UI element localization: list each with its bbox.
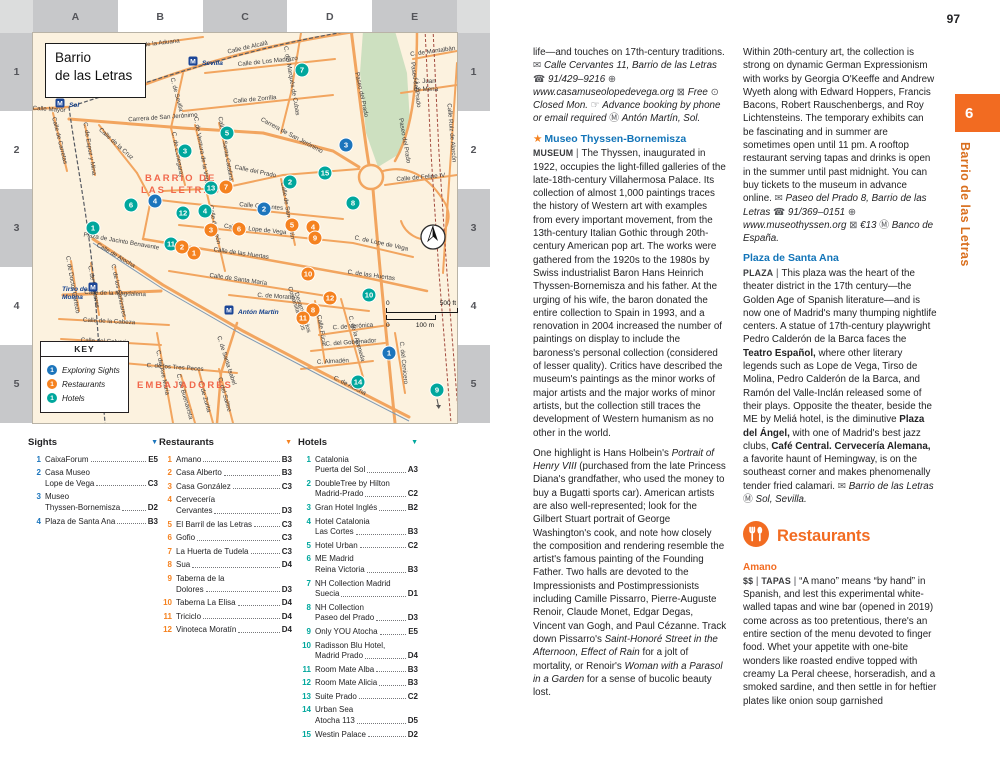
list-item-number: 1 [159,455,172,465]
dot-leader [368,736,406,737]
restaurants-list: Restaurants▼1AmanoB32Casa AlbertoB33Casa… [159,438,292,639]
svg-text:2: 2 [262,205,266,214]
street-label: Calle de Carretas [50,116,68,164]
list-item-name: Madrid Prado [315,651,363,661]
svg-text:10: 10 [304,270,312,279]
street-label: Calle de la Cruz [97,127,134,162]
list-item: 12Room Mate AliciaB3 [298,678,418,688]
fork-and-spoon-icon [743,521,769,551]
key-row: 1Hotels [47,393,122,403]
dot-leader [365,658,406,659]
list-item-number: 5 [159,520,172,530]
svg-text:7: 7 [224,183,228,192]
svg-text:2: 2 [180,243,184,252]
metro-station-label: Antón Martín [237,309,279,316]
key-item-label: Restaurants [62,380,105,389]
scale-zero-m: 0 [386,322,390,329]
grid-reference: B3 [408,527,418,537]
chapter-title-vertical: Barrio de las Letras [958,142,972,312]
list-item-number: 2 [298,479,311,489]
dot-leader [206,591,280,592]
list-item-number: 2 [159,468,172,478]
list-title: Sights [28,438,57,448]
svg-text:14: 14 [354,378,363,387]
map-marker-sights-3: 3 [339,138,353,152]
list-item: 4CervantesD3 [159,506,292,516]
key-marker-dot: 1 [47,365,57,375]
grid-col-A: A [33,0,118,33]
grid-col-D: D [287,0,372,33]
list-item-number: 9 [298,627,311,637]
map-key-items: 1Exploring Sights1Restaurants1Hotels [41,357,128,412]
list-item-name: Museo [45,492,69,502]
grid-reference: D4 [282,625,292,635]
svg-text:9: 9 [435,386,439,395]
list-item-number: 11 [159,612,172,622]
map-marker-hotels-1: 1 [86,221,100,235]
dot-leader [238,605,280,606]
hotels-list: Hotels▼1Catalonia1Puerta del SolA32Doubl… [298,438,418,743]
scale-ft-label: 500 ft [440,300,456,307]
grid-reference: D2 [408,730,418,740]
list-item: 7La Huerta de TudelaC3 [159,547,292,557]
chapter-tab: 6 [955,94,1000,132]
list-item-name: Thyssen-Bornemisza [45,503,120,513]
sights-list: Sights▼1CaixaForumE52Casa Museo2Lope de … [28,438,158,530]
street-label: Calle Ruiz de Alarcón [445,103,457,163]
list-item-number: 9 [159,585,172,595]
list-item: 4Las CortesB3 [298,527,418,537]
grid-corner [457,0,490,33]
map-marker-restaurants-12: 12 [323,291,337,305]
grid-reference: B2 [408,503,418,513]
list-item: 3Gran Hotel InglésB2 [298,503,418,513]
paragraph: $$ | TAPAS | “A mano” means “by hand” in… [743,575,937,708]
list-item-number: 7 [159,547,172,557]
dot-leader [224,475,280,476]
list-item: 4Plaza de Santa AnaB3 [28,517,158,527]
dot-leader [91,461,147,462]
list-item: 6ME Madrid [298,554,418,564]
paragraph: life—and touches on 17th-century traditi… [533,46,727,126]
dot-leader [341,596,405,597]
star-icon: ★ [533,133,542,145]
list-item-name: Hotel Catalonia [315,517,370,527]
list-title: Hotels [298,438,327,448]
list-item: 2Madrid-PradoC2 [298,489,418,499]
scale-bar-ft [386,308,458,313]
list-item: 4Hotel Catalonia [298,517,418,527]
grid-reference: D2 [148,503,158,513]
list-item-number: 4 [159,506,172,516]
list-item: 10Madrid PradoD4 [298,651,418,661]
dot-leader [192,567,280,568]
list-item: 3Casa GonzálezC3 [159,482,292,492]
list-item-name: Dolores [176,585,204,595]
key-row: 1Exploring Sights [47,365,122,375]
map-title-line2: de las Letras [55,67,145,85]
area-label: EMBAJADORES [137,380,233,391]
list-item-number: 9 [159,574,172,584]
dot-leader [203,461,279,462]
map-key: KEY 1Exploring Sights1Restaurants1Hotels [40,341,129,413]
list-item: 13Suite PradoC2 [298,692,418,702]
list-item: 2Casa Museo [28,468,158,478]
svg-text:9: 9 [313,234,317,243]
grid-reference: C2 [408,692,418,702]
map-marker-hotels-15: 15 [318,166,332,180]
text-column-2: Within 20th-century art, the collection … [743,46,937,715]
grid-reference: C3 [148,479,158,489]
grid-col-E: E [372,0,457,33]
list-item-name: Reina Victoria [315,565,365,575]
list-item-number: 15 [298,730,311,740]
list-item-number: 4 [159,495,172,505]
list-item: 11TricicloD4 [159,612,292,622]
map-marker-restaurants-2: 2 [175,240,189,254]
list-item-number: 4 [28,517,41,527]
svg-text:2: 2 [288,178,292,187]
list-item-number: 13 [298,692,311,702]
map-title-line1: Barrio [55,49,145,67]
list-title: Restaurants [159,438,214,448]
grid-col-B: B [118,0,203,33]
list-item-number: 12 [298,678,311,688]
svg-text:M: M [57,100,63,107]
map-marker-sights-4: 4 [148,194,162,208]
dot-leader [379,685,406,686]
list-item-name: El Barril de las Letras [176,520,252,530]
list-item: 12Vinoteca MoratínD4 [159,625,292,635]
scale-bar-m [386,315,436,320]
svg-text:6: 6 [237,225,241,234]
list-item-name: Cervantes [176,506,212,516]
text-column-1: life—and touches on 17th-century traditi… [533,46,727,706]
grid-reference: D3 [408,613,418,623]
restaurant-name-heading: Amano [743,561,937,574]
dot-leader [254,526,280,527]
map-marker-hotels-8: 8 [346,196,360,210]
area-label: BARRIO DE [145,173,216,184]
list-item-number: 1 [28,455,41,465]
map-marker-restaurants-3: 3 [204,223,218,237]
list-item-name: Atocha 113 [315,716,355,726]
map-marker-hotels-5: 5 [220,126,234,140]
list-item-number: 14 [298,705,311,715]
svg-text:3: 3 [183,147,187,156]
scale-m-label: 100 m [416,322,434,329]
list-header: Restaurants▼ [159,438,292,448]
list-item-name: Room Mate Alba [315,665,374,675]
list-item: 6Reina VictoriaB3 [298,565,418,575]
list-item: 10Taberna La ElisaD4 [159,598,292,608]
grid-col-C: C [203,0,288,33]
grid-row-left-4: 4 [0,267,33,345]
list-item-name: Suite Prado [315,692,357,702]
grid-reference: D4 [282,598,292,608]
list-item: 9DoloresD3 [159,585,292,595]
chapter-number: 6 [965,105,973,122]
street-label: Calle de la Cabeza [83,317,136,327]
grid-row-left-3: 3 [0,189,33,267]
map-marker-restaurants-7: 7 [219,180,233,194]
list-item-name: Radisson Blu Hotel, [315,641,385,651]
grid-reference: D3 [282,506,292,516]
dot-leader [357,723,406,724]
svg-text:11: 11 [299,314,308,323]
map-marker-hotels-4: 4 [198,204,212,218]
section-title: Restaurants [777,530,870,543]
map-marker-hotels-7: 7 [295,63,309,77]
list-item: 8NH Collection [298,603,418,613]
key-item-label: Exploring Sights [62,366,120,375]
page-number: 97 [930,12,960,26]
dot-leader [367,472,406,473]
map-marker-hotels-13: 13 [204,181,218,195]
list-item: 7NH Collection Madrid [298,579,418,589]
svg-text:M: M [90,284,96,291]
map-marker-restaurants-9: 9 [308,231,322,245]
poi-heading: Plaza de Santa Ana [743,252,937,265]
list-item-number: 11 [298,665,311,675]
map-key-title: KEY [41,342,128,357]
list-item-number: 3 [159,482,172,492]
list-item-name: Urban Sea [315,705,353,715]
grid-reference: B3 [408,665,418,675]
list-item-number: 6 [298,554,311,564]
dot-leader [376,620,406,621]
list-item: 4Cervecería [159,495,292,505]
grid-row-right-5: 5 [457,345,490,423]
map-marker-sights-1: 1 [382,346,396,360]
list-item-number: 8 [298,613,311,623]
dot-leader [376,671,406,672]
street-label: C. de los Tres Peces [146,362,203,373]
dot-leader [356,534,406,535]
list-item: 8Paseo del PradoD3 [298,613,418,623]
list-item-number: 6 [159,533,172,543]
list-item: 5Hotel UrbanC2 [298,541,418,551]
list-item-name: DoubleTree by Hilton [315,479,390,489]
list-item-name: Amano [176,455,201,465]
list-item: 3Thyssen-BornemiszaD2 [28,503,158,513]
roundabout [359,165,383,189]
grid-reference: C3 [282,547,292,557]
map-marker-hotels-10: 10 [362,288,376,302]
list-item-name: Westin Palace [315,730,366,740]
list-item: 2Lope de VegaC3 [28,479,158,489]
svg-text:7: 7 [300,66,304,75]
list-item-name: Gofio [176,533,195,543]
list-item-number: 7 [298,589,311,599]
list-item: 2Casa AlbertoB3 [159,468,292,478]
list-item-name: Casa Alberto [176,468,222,478]
list-item-number: 10 [298,641,311,651]
list-item-name: Taberna La Elisa [176,598,236,608]
svg-text:15: 15 [321,169,330,178]
map-marker-restaurants-10: 10 [301,267,315,281]
svg-text:12: 12 [179,209,187,218]
list-item-name: La Huerta de Tudela [176,547,249,557]
north-arrow-icon [419,223,447,251]
map-title-box: Barrio de las Letras [45,43,146,98]
list-item: 1Puerta del SolA3 [298,465,418,475]
list-item-number: 4 [298,527,311,537]
list-item-number: 3 [298,503,311,513]
map-marker-hotels-12: 12 [176,206,190,220]
metro-station-label: Sol [69,102,79,109]
street-label: Calle de Felipe IV [396,172,446,183]
dot-leader [251,553,280,554]
list-item: 8SuaD4 [159,560,292,570]
list-item-name: Cervecería [176,495,215,505]
grid-row-left-5: 5 [0,345,33,423]
grid-reference: B3 [282,455,292,465]
list-item-number: 5 [298,541,311,551]
list-item-number: 12 [159,625,172,635]
list-item-name: NH Collection [315,603,364,613]
list-item-number: 10 [159,598,172,608]
list-item-number: 6 [298,565,311,575]
street-label: C. de Sevilla [169,77,185,113]
street-label: C. de Espoz y Mina [81,122,97,177]
paragraph: Within 20th-century art, the collection … [743,46,937,245]
list-item-name: Suecia [315,589,339,599]
list-item-number: 1 [298,455,311,465]
svg-text:M: M [226,307,232,314]
svg-text:11: 11 [167,240,176,249]
grid-row-right-2: 2 [457,111,490,189]
sort-triangle-icon: ▼ [411,438,418,448]
key-marker-dot: 1 [47,393,57,403]
list-item: 1CaixaForumE5 [28,455,158,465]
list-item: 14Urban Sea [298,705,418,715]
grid-reference: E5 [148,455,158,465]
list-item: 9Taberna de la [159,574,292,584]
svg-text:13: 13 [207,184,215,193]
street-label: Carrera de San Jerónimo [128,112,198,124]
list-item-name: ME Madrid [315,554,354,564]
list-header: Hotels▼ [298,438,418,448]
grid-reference: D4 [408,651,418,661]
dot-leader [238,632,279,633]
dot-leader [117,523,145,524]
list-item-name: Casa Museo [45,468,90,478]
dot-leader [367,572,406,573]
sort-triangle-icon: ▼ [151,438,158,448]
list-item-name: Taberna de la [176,574,224,584]
list-item-number: 2 [298,489,311,499]
svg-text:12: 12 [326,294,334,303]
dot-leader [365,496,405,497]
grid-row-right-3: 3 [457,189,490,267]
street-label: Calle del Prado [234,164,277,180]
list-item: 1Catalonia [298,455,418,465]
list-item-number: 1 [298,465,311,475]
grid-reference: D1 [408,589,418,599]
dot-leader [359,698,406,699]
list-item-number: 14 [298,716,311,726]
list-item-number: 4 [298,517,311,527]
svg-text:3: 3 [344,141,348,150]
map-marker-restaurants-6: 6 [232,222,246,236]
grid-reference: C3 [282,520,292,530]
scale-zero-ft: 0 [386,300,390,307]
metro-station-label: Molina [62,294,83,301]
street-label: C. de las Huertas [347,269,395,283]
list-item-name: Las Cortes [315,527,354,537]
grid-reference: B3 [282,468,292,478]
list-item-number: 3 [28,503,41,513]
list-item-name: Vinoteca Moratín [176,625,236,635]
street-label: Calle de Santa María [209,272,268,287]
list-header: Sights▼ [28,438,158,448]
svg-text:8: 8 [311,306,315,315]
list-item: 15Westin PalaceD2 [298,730,418,740]
key-marker-dot: 1 [47,379,57,389]
grid-reference: B3 [148,517,158,527]
list-item-number: 2 [28,479,41,489]
list-item-name: Room Mate Alicia [315,678,377,688]
paragraph: PLAZA | This plaza was the heart of the … [743,267,937,506]
list-item: 6GofioC3 [159,533,292,543]
dot-leader [203,618,280,619]
list-item-name: Only YOU Atocha [315,627,378,637]
metro-station-label: Tirso de [62,286,88,293]
svg-text:M: M [190,58,196,65]
list-item: 11Room Mate AlbaB3 [298,665,418,675]
grid-row-right-4: 4 [457,267,490,345]
list-item-name: Hotel Urban [315,541,358,551]
grid-reference: C3 [282,533,292,543]
grid-reference: D3 [282,585,292,595]
grid-reference: D4 [282,612,292,622]
list-item: 3Museo [28,492,158,502]
dot-leader [360,547,406,548]
list-item-name: Gran Hotel Inglés [315,503,377,513]
list-item-name: NH Collection Madrid [315,579,391,589]
map-marker-sights-2: 2 [257,202,271,216]
list-item-name: Casa González [176,482,231,492]
grid-reference: D4 [282,560,292,570]
grid-reference: C2 [408,489,418,499]
list-item-name: Lope de Vega [45,479,94,489]
grid-reference: B3 [408,565,418,575]
list-item: 7SueciaD1 [298,589,418,599]
list-item-number: 7 [298,579,311,589]
key-row: 1Restaurants [47,379,122,389]
grid-reference: E5 [408,627,418,637]
grid-reference: B3 [408,678,418,688]
svg-text:3: 3 [209,226,213,235]
map-marker-hotels-14: 14 [351,375,365,389]
svg-text:8: 8 [351,199,355,208]
svg-text:10: 10 [365,291,373,300]
grid-corner [0,0,33,33]
dot-leader [380,634,407,635]
list-item: 10Radisson Blu Hotel, [298,641,418,651]
list-item: 5El Barril de las LetrasC3 [159,520,292,530]
grid-reference: D5 [408,716,418,726]
list-item: 1AmanoB3 [159,455,292,465]
dot-leader [197,540,280,541]
dot-leader [233,488,280,489]
list-item-name: Madrid-Prado [315,489,363,499]
key-item-label: Hotels [62,394,85,403]
list-item-name: Catalonia [315,455,349,465]
metro-station-label: Sevilla [202,60,223,67]
grid-row-left-1: 1 [0,33,33,111]
